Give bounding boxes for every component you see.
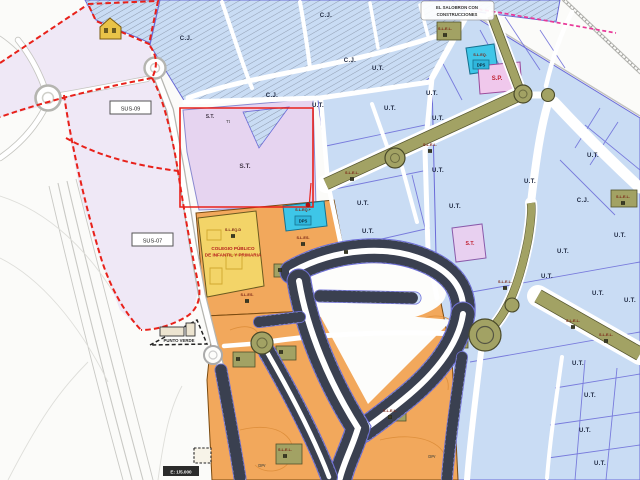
- parcel-label-tt: Tt: [226, 119, 231, 124]
- facility-icon: [571, 325, 575, 328]
- development-note-line2: CONSTRUCCIONES: [437, 12, 478, 17]
- dps-badge-north-text: DPS: [477, 63, 486, 68]
- parcel-label-ut: U.T.: [449, 204, 461, 210]
- parcel-label-sles: S.L.ES.: [240, 293, 253, 297]
- parcel-label-slel: S.L.E.L.: [383, 409, 397, 413]
- facility-icon: [503, 286, 507, 289]
- parcel-label-slel: S.L.E.L.: [423, 143, 437, 147]
- parcel-label-ut: U.T.: [524, 179, 536, 185]
- facility-icon: [443, 33, 447, 36]
- parcel-label-ut: U.T.: [362, 229, 374, 235]
- parcel-label-cj: C.J.: [266, 93, 278, 99]
- parcel-label-st: S.T.: [466, 241, 475, 247]
- facility-icon: [621, 201, 625, 204]
- development-note-line1: EL SALOBRON CON: [436, 5, 478, 10]
- parcel-label-ut: U.T.: [614, 233, 626, 239]
- facility-icon: [245, 299, 249, 302]
- parcel-label-ut: U.T.: [312, 103, 324, 109]
- parcel-label-sleq: S.L.EQ.+: [295, 208, 312, 212]
- parcel-label-sles: S.L.ES.: [296, 236, 309, 240]
- school-name-line1: COLEGIO PÚBLICO: [211, 245, 255, 251]
- sus09-label: SUS-09: [121, 107, 141, 113]
- parcel-label-ut: U.T.: [572, 361, 584, 367]
- parcel-label-cj: C.J.: [180, 36, 192, 42]
- parcel-label-cj: C.J.: [344, 58, 356, 64]
- dps-badge-center-text: DPS: [299, 219, 308, 224]
- parcel-label-sleqd: S.L.EQ.D: [225, 228, 242, 232]
- parcel-label-dpr: DPr: [428, 454, 436, 459]
- parcel-label-slel: S.L.E.L.: [345, 171, 359, 175]
- green-point-label: PUNTO VERDE: [164, 338, 195, 343]
- parcel-label-ut: U.T.: [579, 428, 591, 434]
- sus07-label: SUS-07: [143, 239, 163, 245]
- parcel-label-ut: U.T.: [587, 153, 599, 159]
- parcel-label-ut: U.T.: [594, 461, 606, 467]
- parcel-label-slel: S.L.E.L.: [616, 195, 630, 199]
- facility-icon: [344, 250, 348, 253]
- parcel-label-st: S.T.: [206, 114, 215, 120]
- school-name-line2: DE INFANTIL Y PRIMARIA: [205, 253, 262, 258]
- parcel-label-ut: U.T.: [432, 168, 444, 174]
- parcel-label-ut: U.T.: [357, 201, 369, 207]
- facility-icon: [279, 350, 283, 353]
- parcel-label-slel: S.L.E.L.: [498, 280, 512, 284]
- parcel-label-st: S.T.: [239, 163, 250, 170]
- parcel-label-ut: U.T.: [426, 91, 438, 97]
- facility-icon: [236, 357, 240, 360]
- parcel-label-slel: S.L.E.L.: [599, 333, 613, 337]
- facility-icon: [350, 177, 354, 180]
- parcel-label-dpr: DPr: [258, 463, 266, 468]
- parcel-label-sp: S.P.: [492, 76, 503, 82]
- facility-icon: [278, 268, 282, 271]
- zoning-map-viewport[interactable]: C.J.C.J.C.J.C.J.U.T.U.T.U.T.U.T.U.T.U.T.…: [0, 0, 640, 480]
- parcel-label-cj: C.J.: [320, 13, 332, 19]
- parcel-label-ut: U.T.: [592, 291, 604, 297]
- parcel-label-ut: U.T.: [384, 106, 396, 112]
- parcel-label-ut: U.T.: [584, 393, 596, 399]
- parcel-label-ut: U.T.: [541, 274, 553, 280]
- parcel-label-cj: C.J.: [577, 198, 589, 204]
- parcel-label-sleq: S.L.EQ.: [473, 53, 487, 57]
- zoning-map[interactable]: C.J.C.J.C.J.C.J.U.T.U.T.U.T.U.T.U.T.U.T.…: [0, 0, 640, 480]
- facility-icon: [283, 454, 287, 457]
- facility-icon: [231, 234, 235, 237]
- facility-icon: [301, 242, 305, 245]
- scale-badge-text: E: 1/5.000: [170, 470, 192, 475]
- st-sector-block: [183, 99, 316, 210]
- parcel-label-ut: U.T.: [372, 66, 384, 72]
- parcel-label-slel: S.L.E.L.: [438, 27, 452, 31]
- development-note-bubble: [421, 1, 494, 20]
- parcel-label-ut: U.T.: [624, 298, 636, 304]
- parcel-label-ut: U.T.: [432, 116, 444, 122]
- facility-icon: [388, 415, 392, 418]
- parcel-label-slel: S.L.E.L.: [278, 448, 292, 452]
- parcel-label-ut: U.T.: [557, 249, 569, 255]
- dashed-square-marker: [194, 448, 211, 463]
- facility-icon: [428, 149, 432, 152]
- parcel-label-slel: S.L.E.L.: [566, 319, 580, 323]
- facility-icon: [604, 339, 608, 342]
